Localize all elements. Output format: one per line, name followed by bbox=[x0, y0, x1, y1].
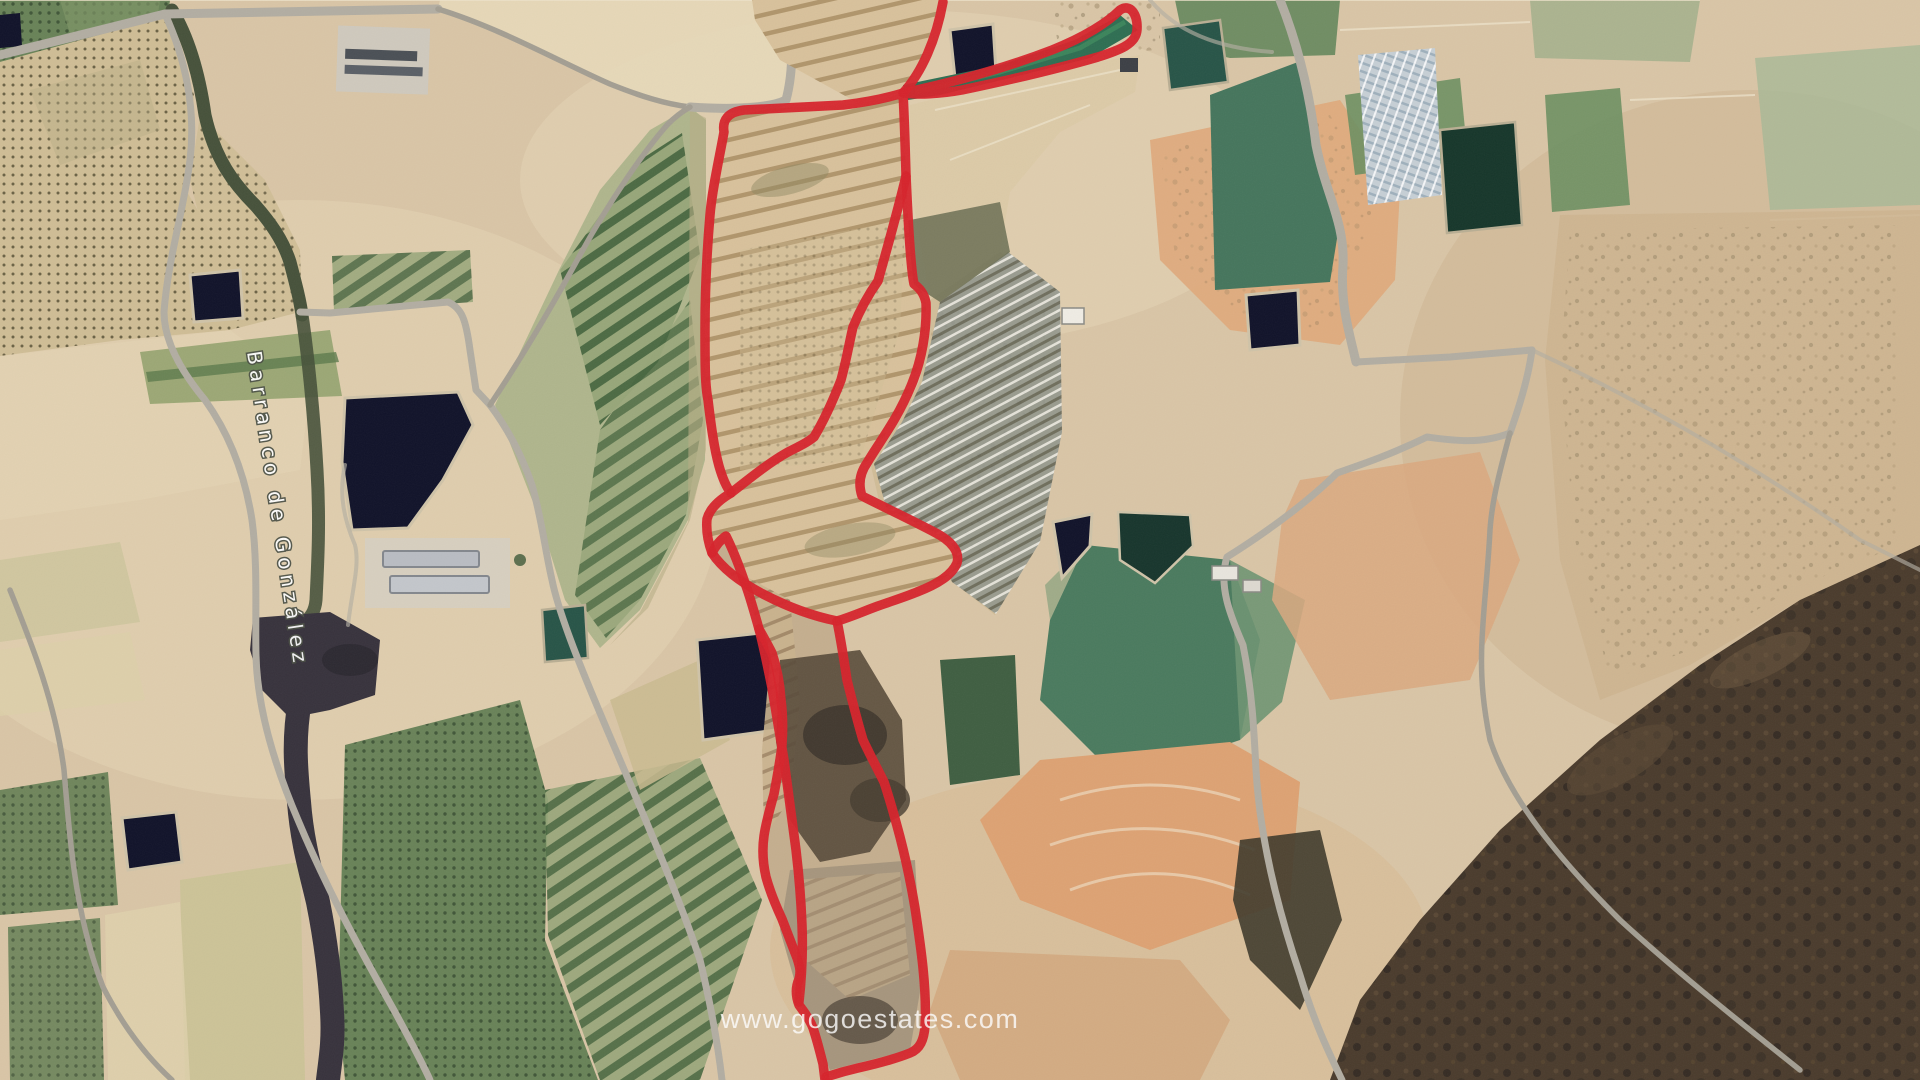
image-grain-overlay bbox=[0, 0, 1920, 1080]
satellite-map-image: Barranco de González www.gogoestates.com bbox=[0, 0, 1920, 1080]
satellite-map-canvas: Barranco de González www.gogoestates.com bbox=[0, 0, 1920, 1080]
